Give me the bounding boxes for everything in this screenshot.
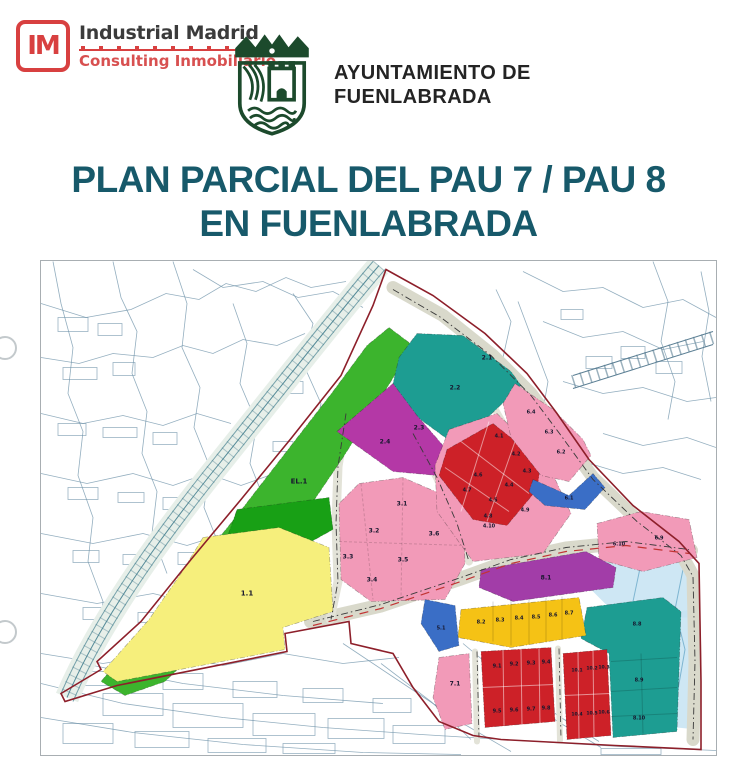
parcel-label-8-strip: 8.7 — [565, 611, 574, 617]
ayuntamiento-name: AYUNTAMIENTO DE FUENLABRADA — [334, 61, 531, 109]
parcel-label-9: 9.1 — [493, 664, 502, 670]
parcel-label-4-red: 4.4 — [505, 483, 514, 489]
parcel-label-10: 10.4 — [571, 712, 582, 718]
parcel-label-9: 9.5 — [493, 709, 502, 715]
parcel-label-4-red: 4.5 — [489, 498, 498, 504]
map-frame: EL.11.12.12.22.32.43.13.23.33.43.53.64.9… — [40, 260, 717, 756]
parcel-1-1 — [103, 528, 333, 682]
zoning-map: EL.11.12.12.22.32.43.13.23.33.43.53.64.9… — [41, 261, 716, 755]
parcel-label-4-red: 4.8 — [484, 514, 493, 520]
parcel-label-9: 9.4 — [542, 660, 551, 666]
parcel-label-4-pink: 4.9 — [521, 508, 530, 514]
parcel-label-10: 10.1 — [571, 668, 582, 674]
parcel-label-3: 3.1 — [397, 501, 408, 508]
parcel-label-8-teal: 8.8 — [633, 622, 642, 628]
parcel-label-2-teal: 2.1 — [482, 355, 493, 362]
parcel-label-10: 10.6 — [598, 710, 609, 716]
parcel-label-4-red: 4.7 — [463, 488, 472, 494]
parcel-label-9: 9.2 — [510, 662, 519, 668]
parcel-label-8-1: 8.1 — [541, 575, 552, 582]
hole-punch — [0, 620, 17, 644]
ayuntamiento-block: AYUNTAMIENTO DE FUENLABRADA — [226, 28, 531, 142]
parcel-label-3: 3.6 — [429, 531, 440, 538]
im-monogram-text: IM — [27, 31, 59, 61]
parcel-label-8-teal: 8.9 — [635, 678, 644, 684]
im-monogram-icon: IM — [16, 20, 70, 72]
page-title-line1: PLAN PARCIAL DEL PAU 7 / PAU 8 — [0, 158, 737, 202]
page: { "header": { "logo": { "monogram": "IM"… — [0, 0, 737, 768]
parcel-label-3: 3.3 — [343, 554, 354, 561]
hole-punch — [0, 336, 17, 360]
parcel-label-9: 9.7 — [527, 707, 536, 713]
parcels-layer — [101, 328, 697, 740]
parcel-label-4-red: 4.1 — [495, 434, 504, 440]
parcel-label-3: 3.5 — [398, 557, 409, 564]
parcel-label-2-teal: 2.2 — [450, 385, 461, 392]
parcel-label-4-red: 4.6 — [474, 473, 483, 479]
parcel-label-6-1: 6.1 — [565, 496, 574, 502]
parcel-label-4-red: 4.2 — [512, 452, 521, 458]
parcel-label-2-magenta: 2.3 — [414, 425, 425, 432]
page-title-line2: EN FUENLABRADA — [0, 202, 737, 246]
parcel-label-9: 9.8 — [542, 706, 551, 712]
ayuntamiento-line2: FUENLABRADA — [334, 85, 531, 109]
parcel-label-1-1: 1.1 — [241, 590, 254, 598]
parcel-7-1 — [433, 654, 472, 730]
parcel-label-6-910: 6.9 — [655, 536, 664, 542]
ayuntamiento-line1: AYUNTAMIENTO DE — [334, 61, 531, 85]
parcel-label-6-pink: 6.2 — [557, 450, 566, 456]
parcel-label-8-strip: 8.3 — [496, 618, 505, 624]
parcel-label-3: 3.2 — [369, 528, 380, 535]
parcel-label-8-strip: 8.6 — [549, 613, 558, 619]
parcel-label-el-1: EL.1 — [291, 478, 308, 486]
parcel-label-9: 9.6 — [510, 708, 519, 714]
parcel-label-8-strip: 8.2 — [477, 620, 486, 626]
parcel-label-7-1: 7.1 — [450, 681, 461, 688]
parcel-label-4-red: 4.3 — [523, 469, 532, 475]
parcel-label-8-strip: 8.4 — [515, 616, 524, 622]
parcel-label-10: 10.5 — [586, 711, 597, 717]
parcel-label-6-pink: 6.4 — [527, 410, 536, 416]
parcel-label-8-teal: 8.10 — [633, 716, 646, 722]
parcel-label-5-1: 5.1 — [437, 626, 446, 632]
parcel-label-2-magenta: 2.4 — [380, 439, 391, 446]
parcel-label-6-910: 6.10 — [613, 542, 626, 548]
parcel-label-3: 3.4 — [367, 577, 378, 584]
fuenlabrada-crest-icon — [226, 28, 318, 142]
page-title: PLAN PARCIAL DEL PAU 7 / PAU 8 EN FUENLA… — [0, 158, 737, 245]
parcel-label-6-pink: 6.3 — [545, 430, 554, 436]
parcel-label-9: 9.3 — [527, 661, 536, 667]
parcel-label-4-pink: 4.10 — [483, 524, 496, 530]
parcel-label-10: 10.2 — [586, 666, 597, 672]
parcel-label-8-strip: 8.5 — [532, 615, 541, 621]
parcel-label-10: 10.3 — [598, 665, 609, 671]
